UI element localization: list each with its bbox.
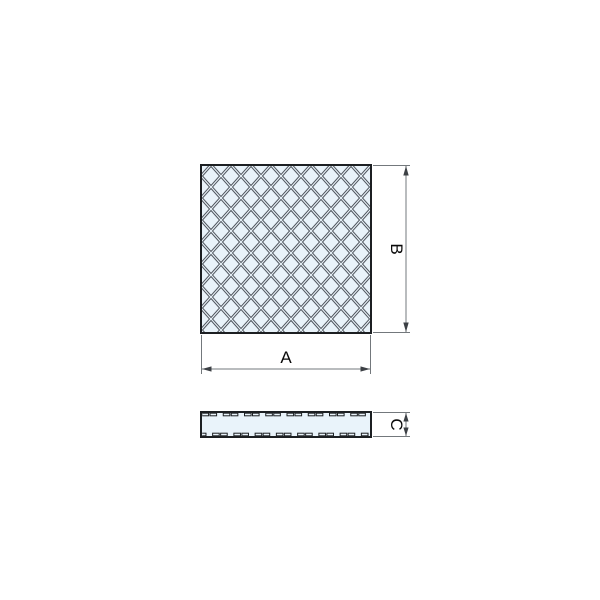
tread-notch — [327, 433, 334, 436]
tread-notch — [330, 413, 337, 416]
tread-notch — [361, 433, 368, 436]
tread-notch — [266, 413, 273, 416]
dimension-b: B — [373, 166, 410, 333]
tread-notch — [276, 433, 283, 436]
dimension-a: A — [202, 335, 371, 374]
tread-notch — [338, 413, 345, 416]
tread-notch — [253, 413, 260, 416]
tread-notch — [274, 413, 281, 416]
technical-drawing: B A C — [0, 0, 600, 600]
dimension-b-label: B — [387, 243, 406, 254]
top-view — [201, 165, 371, 333]
tread-notch — [202, 413, 209, 416]
arrowhead-left-icon — [202, 366, 212, 371]
dimension-a-label: A — [280, 348, 292, 367]
tread-notch — [319, 433, 326, 436]
tread-notch — [223, 413, 230, 416]
arrowhead-right-icon — [361, 366, 371, 371]
tread-notch — [295, 413, 302, 416]
side-view — [199, 412, 376, 437]
tread-notch — [340, 433, 347, 436]
tread-notch — [284, 433, 291, 436]
tread-notch — [351, 413, 358, 416]
dimension-c-label: C — [387, 418, 406, 430]
tread-notch — [234, 433, 241, 436]
arrowhead-up-icon — [403, 166, 408, 176]
tread-notch — [308, 413, 315, 416]
tread-notch — [306, 433, 313, 436]
tread-notch — [348, 433, 355, 436]
tread-notch — [316, 413, 323, 416]
tread-notch — [287, 413, 294, 416]
arrowhead-down-icon — [403, 323, 408, 333]
tread-notch — [231, 413, 238, 416]
tread-notch — [255, 433, 262, 436]
tread-notch — [221, 433, 228, 436]
tread-notch — [242, 433, 249, 436]
drawing-canvas: B A C — [0, 0, 600, 600]
tread-notch — [359, 413, 366, 416]
tread-notch — [213, 433, 220, 436]
tread-notch — [245, 413, 252, 416]
dimension-c: C — [373, 413, 410, 437]
tread-notch — [210, 413, 217, 416]
tread-notch — [298, 433, 305, 436]
tread-notch — [263, 433, 270, 436]
diamond-tread-pattern — [201, 165, 371, 333]
